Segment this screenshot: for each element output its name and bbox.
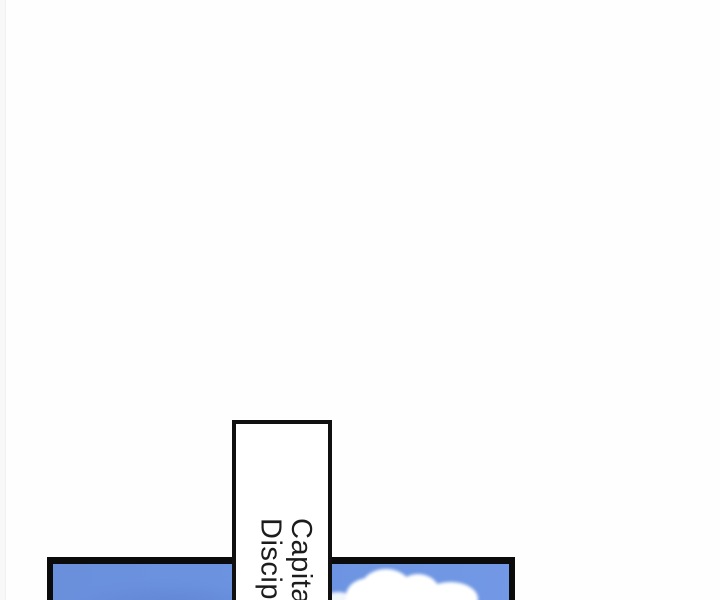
page-edge-strip xyxy=(0,0,6,600)
pillar-capital-discipline: Capital Discipline xyxy=(232,420,332,600)
pillar-label: Capital Discipline xyxy=(255,518,316,600)
page: Capital Discipline xyxy=(0,0,720,600)
pillar-label-line2: Discipline xyxy=(255,518,285,600)
pillar-label-line1: Capital xyxy=(286,518,316,600)
